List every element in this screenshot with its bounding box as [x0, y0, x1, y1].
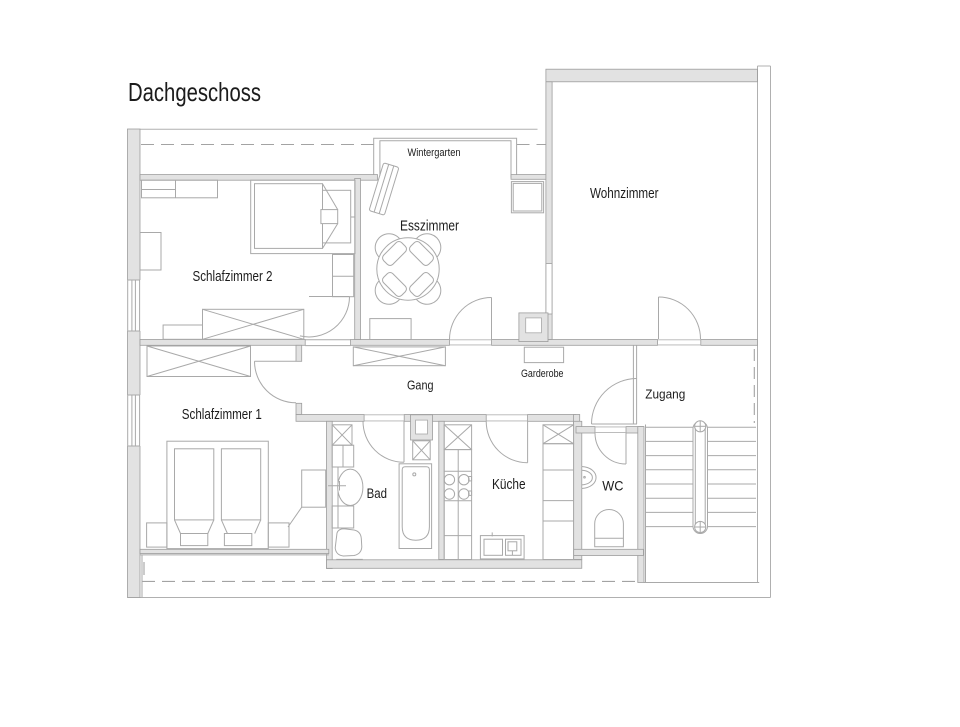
svg-text:Garderobe: Garderobe: [521, 368, 564, 380]
svg-text:WC: WC: [602, 477, 623, 493]
svg-text:Bad: Bad: [367, 486, 387, 501]
svg-text:Esszimmer: Esszimmer: [400, 217, 459, 234]
svg-text:Gang: Gang: [407, 378, 434, 393]
svg-text:Schlafzimmer 2: Schlafzimmer 2: [193, 268, 273, 285]
svg-text:Zugang: Zugang: [645, 387, 685, 402]
svg-text:Küche: Küche: [492, 476, 526, 493]
svg-text:Dachgeschoss: Dachgeschoss: [128, 77, 261, 107]
svg-text:Wintergarten: Wintergarten: [408, 147, 461, 159]
svg-text:Wohnzimmer: Wohnzimmer: [590, 185, 659, 202]
svg-text:Schlafzimmer 1: Schlafzimmer 1: [182, 406, 262, 423]
